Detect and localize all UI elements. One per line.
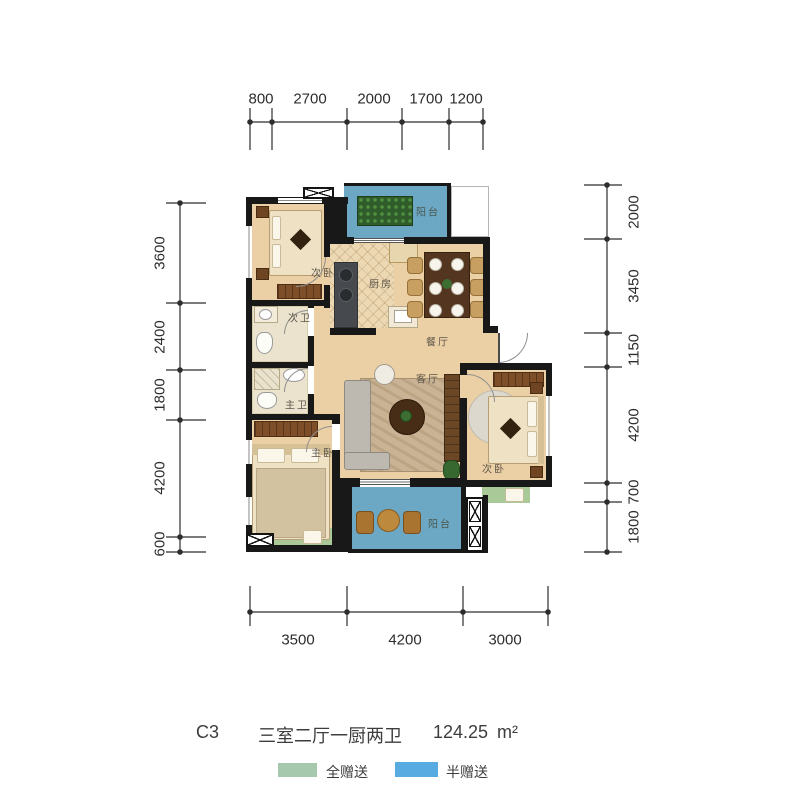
- dining-chair: [407, 301, 423, 318]
- legend-label-full-gift: 全赠送: [326, 762, 368, 782]
- flue-x-symbol-a: [469, 501, 481, 522]
- sliding-door-top-balcony: [354, 238, 404, 243]
- wall-living-balcony-b: [410, 478, 464, 487]
- wall-bedroom-right-left-a: [460, 363, 467, 375]
- balcony-table: [377, 509, 400, 532]
- window-x-symbol-bottom: [246, 533, 274, 547]
- label-bedroom-right: 次卧: [482, 461, 506, 476]
- door-gap-bathM: [308, 366, 314, 394]
- label-dining: 餐厅: [426, 334, 450, 349]
- dim-top-2: 2700: [293, 91, 326, 108]
- headboard: [538, 396, 544, 464]
- unit-code: C3: [196, 722, 219, 743]
- dim-right-4: 4200: [626, 408, 643, 441]
- dim-top-3: 2000: [357, 91, 390, 108]
- dim-bottom-2: 4200: [388, 632, 421, 649]
- wall-balcony-right: [447, 183, 451, 240]
- dining-chair: [407, 279, 423, 296]
- table-plant: [442, 279, 452, 289]
- sink: [259, 309, 272, 320]
- window-bedroom-right: [546, 396, 552, 456]
- label-bath-second: 次卫: [288, 310, 312, 325]
- balcony-chair: [403, 511, 421, 534]
- wall-bath-divider: [252, 362, 314, 368]
- wall-entry-stub: [483, 326, 498, 333]
- dim-right-6: 1800: [626, 510, 643, 543]
- wall-balcony-top: [344, 183, 451, 186]
- dim-top-4: 1700: [409, 91, 442, 108]
- label-living: 客厅: [416, 371, 440, 386]
- label-balcony-top: 阳台: [416, 204, 440, 219]
- dim-left-4: 4200: [152, 461, 169, 494]
- dining-chair: [407, 257, 423, 274]
- plate: [451, 282, 464, 295]
- pillow: [272, 244, 281, 268]
- wall-bathM-master-divider: [252, 414, 340, 420]
- layout-description: 三室二厅一厨两卫: [258, 722, 402, 748]
- dim-right-2: 3450: [626, 269, 643, 302]
- wall-bedroom-right-left-b: [460, 398, 467, 487]
- dim-top-1: 800: [248, 91, 273, 108]
- dim-top-5: 1200: [449, 91, 482, 108]
- plant: [443, 460, 460, 480]
- plate: [429, 304, 442, 317]
- pillow: [527, 431, 537, 457]
- wall-kitchen-balcony-b: [404, 237, 450, 244]
- sofa-chaise: [344, 452, 390, 470]
- dim-bottom-1: 3500: [281, 632, 314, 649]
- tv-cabinet: [444, 374, 460, 462]
- nightstand: [530, 466, 543, 478]
- wall-kitchen-bottom: [330, 328, 376, 335]
- cushion: [303, 530, 322, 544]
- balcony-chair: [356, 511, 374, 534]
- pillow: [272, 216, 281, 240]
- wall-corner-southwest: [340, 478, 352, 552]
- floor-entry-nook: [483, 332, 498, 363]
- cushion: [505, 488, 524, 502]
- nightstand: [256, 268, 269, 280]
- bed-blanket: [256, 468, 326, 538]
- window-left-master-b: [246, 497, 252, 525]
- shower: [254, 368, 280, 390]
- label-bedroom-master: 主卧: [311, 445, 335, 460]
- dim-right-5: 700: [626, 479, 643, 504]
- plate: [429, 282, 442, 295]
- dim-right-3: 1150: [626, 334, 643, 366]
- plate: [451, 304, 464, 317]
- wall-bed1-bath-divider: [252, 300, 330, 306]
- dim-left-1: 3600: [152, 236, 169, 269]
- label-bath-master: 主卫: [285, 397, 309, 412]
- armchair: [374, 364, 395, 385]
- dim-left-2: 2400: [152, 320, 169, 353]
- pillow: [257, 448, 285, 463]
- sliding-door-bottom-balcony: [360, 479, 410, 485]
- wall-living-balcony-a: [352, 478, 360, 487]
- ac-platform: [451, 186, 489, 237]
- door-leaf-entry: [498, 333, 500, 363]
- plate: [429, 258, 442, 271]
- legend-swatch-full-gift: [278, 763, 317, 777]
- flue-x-symbol-b: [469, 526, 481, 547]
- toilet: [256, 332, 273, 354]
- legend-label-half-gift: 半赠送: [446, 762, 488, 782]
- label-balcony-bottom: 阳台: [428, 516, 452, 531]
- wall-kitchen-balcony-a: [330, 237, 354, 244]
- dim-bottom-3: 3000: [488, 632, 521, 649]
- dim-left-5: 600: [152, 531, 169, 556]
- window-left-bedroom: [246, 226, 252, 278]
- wall-bedroom-right-bottom: [460, 480, 552, 487]
- stove-burner: [339, 288, 353, 302]
- planter-box: [357, 196, 413, 226]
- label-bedroom-top: 次卧: [311, 265, 335, 280]
- stove-burner: [339, 268, 353, 282]
- floorplan-canvas: 800 2700 2000 1700 1200 3600 2400 1800 4…: [0, 0, 800, 800]
- label-kitchen: 厨房: [369, 276, 393, 291]
- wardrobe-master: [254, 421, 318, 437]
- plate: [451, 258, 464, 271]
- wall-bedroom1-right-a: [324, 197, 330, 257]
- wall-dining-right: [483, 237, 490, 332]
- dim-left-3: 1800: [152, 378, 169, 411]
- coffee-table-plant: [400, 410, 412, 422]
- area-value: 124.25: [433, 722, 488, 743]
- area-unit: m²: [497, 722, 518, 743]
- flue-x-symbol-top: [303, 187, 334, 199]
- nightstand: [256, 206, 269, 218]
- legend-swatch-half-gift: [395, 762, 438, 777]
- nightstand: [530, 382, 543, 394]
- pillow: [527, 401, 537, 427]
- window-left-master-a: [246, 440, 252, 464]
- dim-right-1: 2000: [626, 195, 643, 228]
- toilet: [257, 392, 277, 409]
- wall-bedroom-right-top: [460, 363, 552, 370]
- wall-balcony-bottom: [348, 549, 467, 553]
